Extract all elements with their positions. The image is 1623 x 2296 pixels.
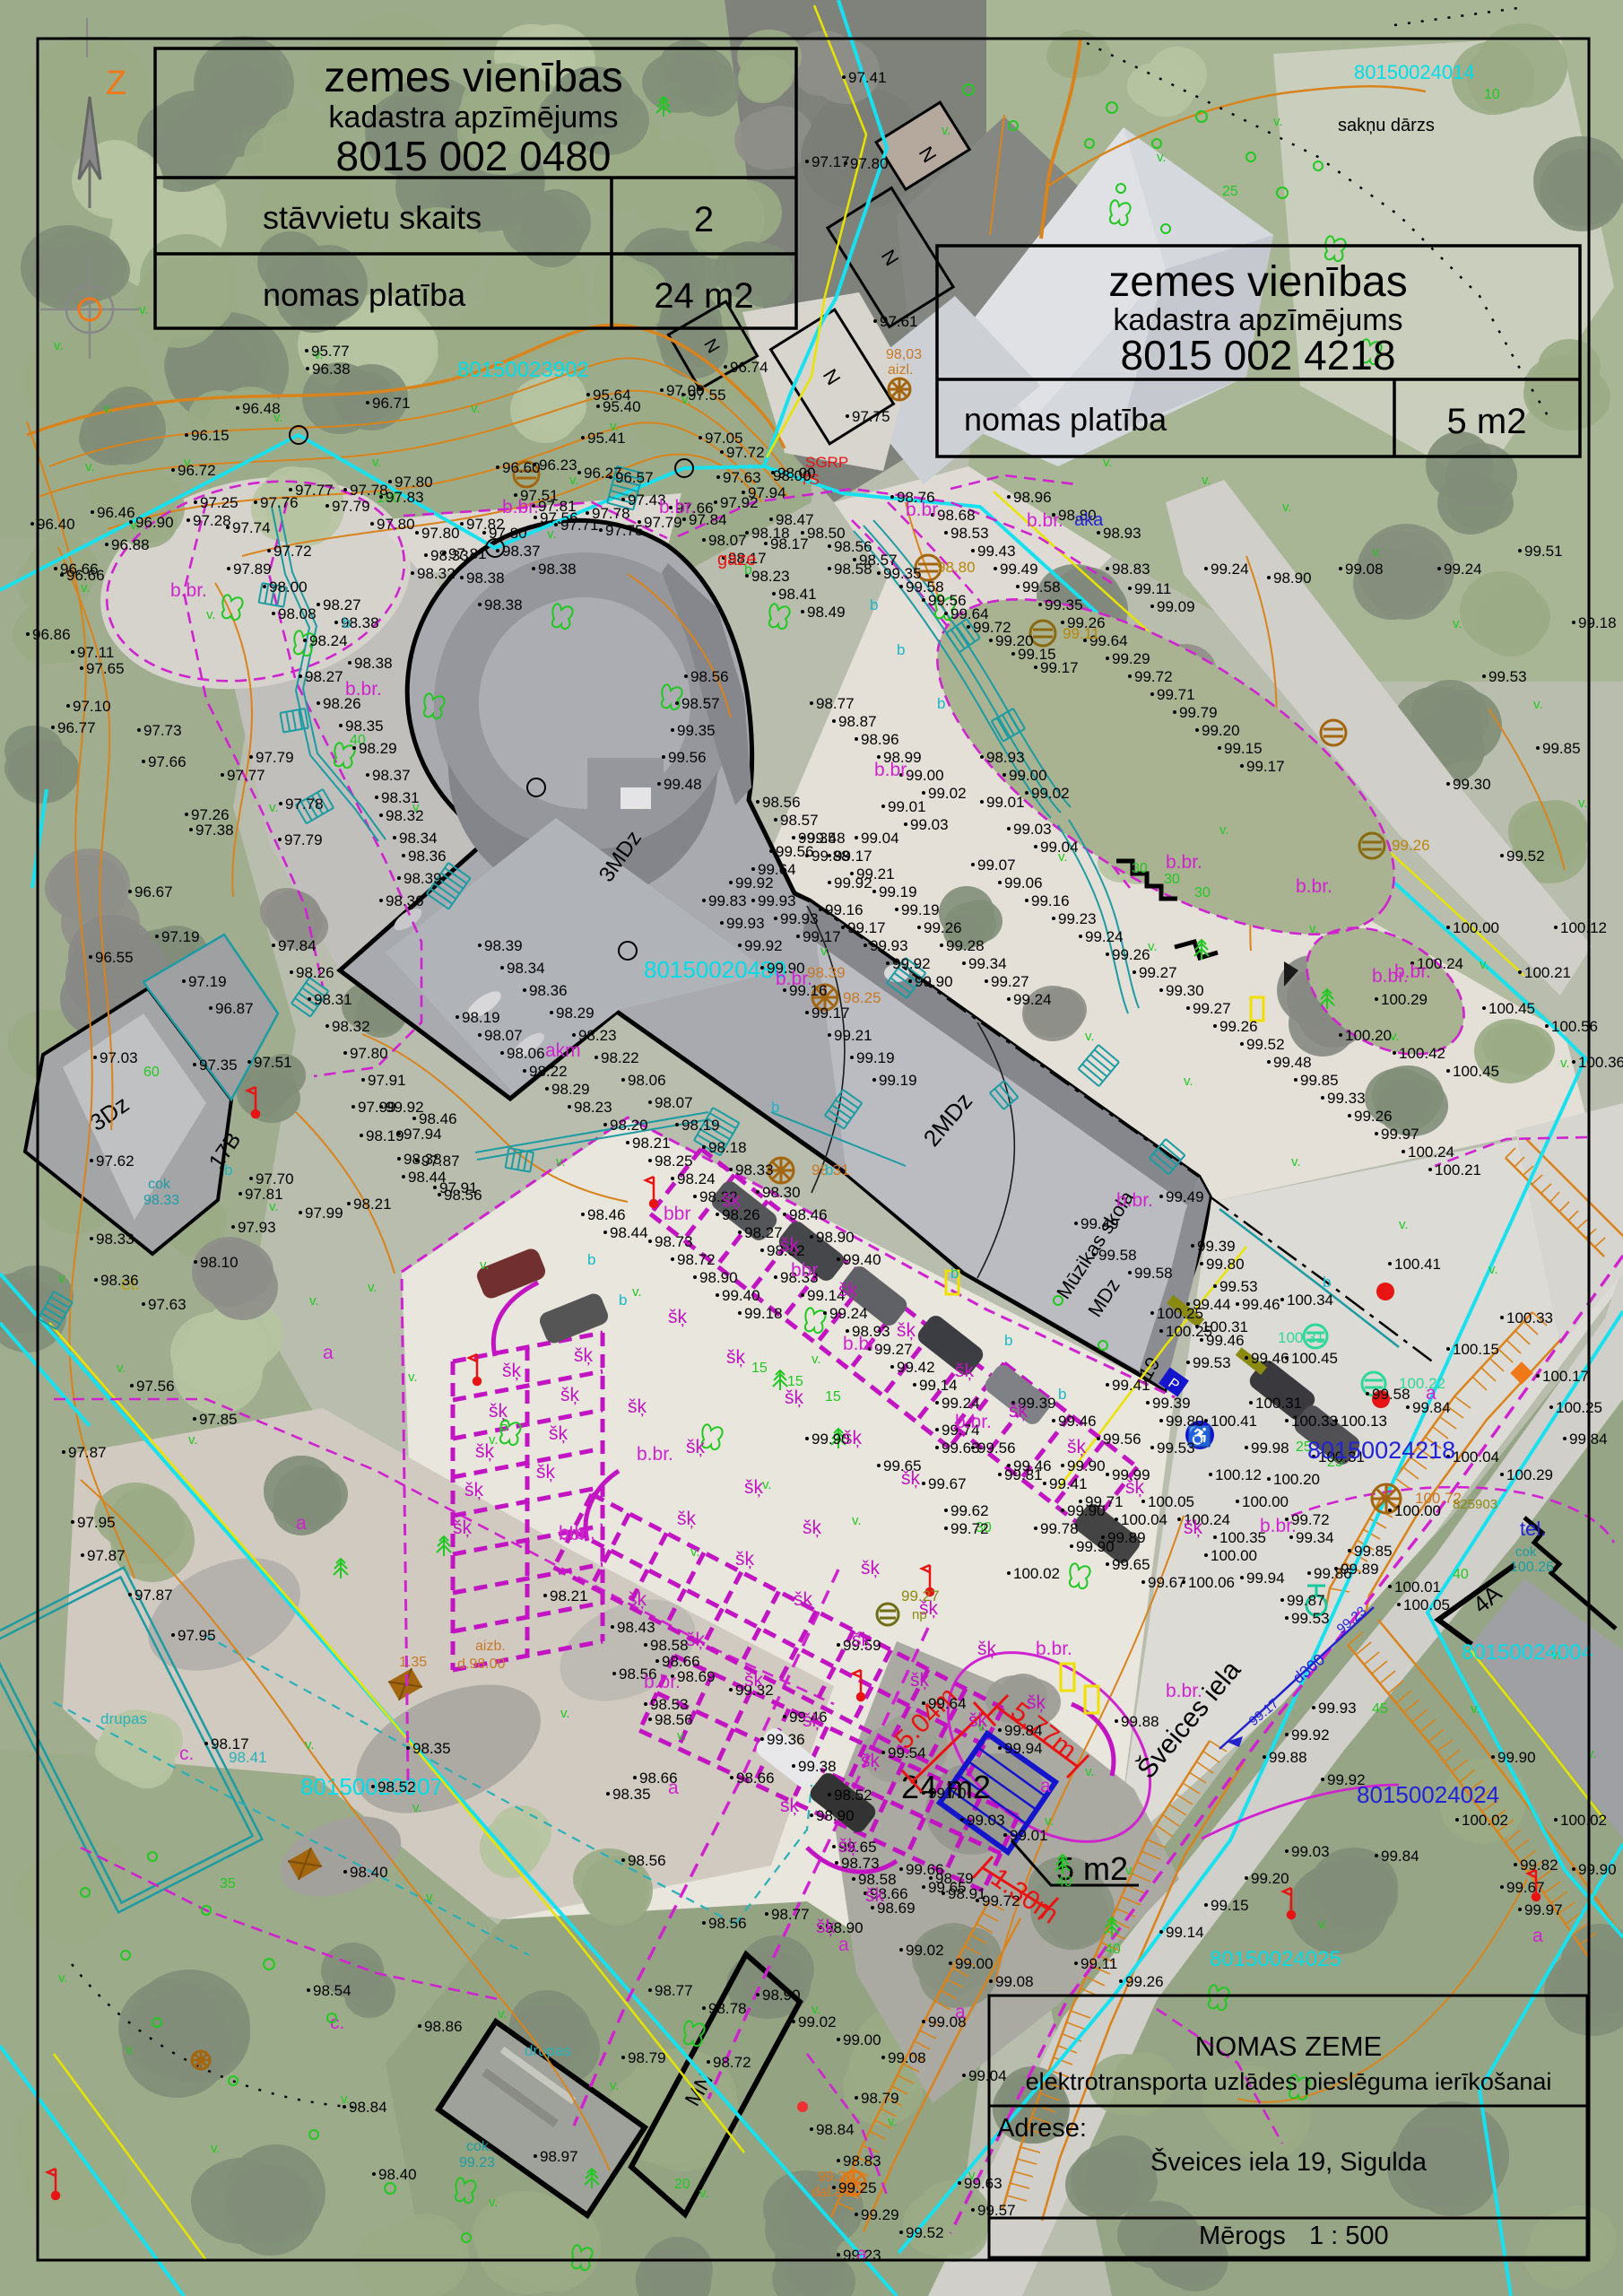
svg-text:98.90: 98.90 [816,1807,855,1824]
svg-text:100.00: 100.00 [1211,1547,1257,1564]
svg-text:98.23: 98.23 [574,1099,612,1116]
svg-text:98.90: 98.90 [1273,570,1312,587]
svg-text:v.: v. [188,1432,198,1448]
svg-text:v.: v. [58,1970,68,1986]
svg-text:98.06: 98.06 [507,1045,545,1062]
svg-text:98.90: 98.90 [762,1987,801,2004]
svg-text:98.87: 98.87 [838,713,877,730]
svg-text:40: 40 [1453,1567,1469,1582]
svg-text:99.65: 99.65 [1112,1556,1150,1573]
svg-text:98.24: 98.24 [677,1170,716,1187]
svg-text:97.87: 97.87 [68,1444,107,1461]
svg-text:cok: cok [1515,1544,1537,1560]
svg-text:v.: v. [206,607,216,622]
svg-text:97.76: 97.76 [260,494,299,511]
svg-text:98.93: 98.93 [1103,525,1141,542]
svg-text:v.: v. [471,401,481,416]
svg-text:98.23: 98.23 [751,568,790,585]
svg-text:97.80: 97.80 [421,525,460,542]
svg-text:98.38: 98.38 [484,596,523,613]
svg-text:99.38: 99.38 [798,1758,837,1775]
svg-text:v.: v. [305,1737,315,1752]
svg-text:99.49: 99.49 [1000,561,1038,578]
svg-text:100.41: 100.41 [1211,1413,1257,1430]
svg-text:98.00: 98.00 [269,578,308,596]
svg-text:97.78: 97.78 [592,505,630,522]
svg-text:99.48: 99.48 [664,776,702,793]
svg-text:97.80: 97.80 [377,516,415,533]
svg-text:100.21: 100.21 [1435,1161,1481,1178]
svg-text:a: a [668,1778,679,1798]
svg-text:aizl.: aizl. [888,362,913,378]
svg-text:b.br.: b.br. [1394,961,1431,982]
svg-text:v.: v. [1202,473,1211,488]
svg-text:100.33: 100.33 [1506,1309,1553,1326]
svg-text:šķ: šķ [502,1361,522,1381]
svg-text:99.93: 99.93 [870,937,908,954]
svg-text:99.80: 99.80 [1206,1256,1245,1273]
svg-text:99.27: 99.27 [1139,964,1177,981]
svg-text:15: 15 [751,1361,768,1376]
svg-text:97.38: 97.38 [195,822,234,839]
svg-text:98.84: 98.84 [349,2099,387,2116]
svg-text:97.83: 97.83 [386,489,424,506]
svg-text:98.19: 98.19 [681,1117,720,1134]
svg-text:v.: v. [368,1280,378,1295]
svg-text:97.65: 97.65 [86,660,125,677]
svg-text:97.95: 97.95 [77,1514,116,1531]
svg-text:b: b [619,1291,627,1309]
svg-text:98.36: 98.36 [529,982,568,999]
svg-text:100.29: 100.29 [1506,1466,1553,1483]
svg-text:SGRP: SGRP [805,454,848,471]
svg-text:99.53: 99.53 [1488,668,1527,685]
svg-text:8015 002 4218: 8015 002 4218 [1121,332,1396,378]
svg-text:v.: v. [85,459,95,474]
svg-text:100.02: 100.02 [1462,1812,1508,1829]
svg-text:1.35: 1.35 [399,1655,427,1670]
svg-text:45: 45 [1372,1701,1388,1717]
svg-text:98.17: 98.17 [211,1735,249,1752]
svg-text:šķ: šķ [794,1589,813,1610]
svg-text:98.18: 98.18 [708,1139,747,1156]
svg-text:b.br.: b.br. [1036,1639,1072,1659]
svg-text:99.94: 99.94 [1004,1740,1043,1757]
svg-text:99.70: 99.70 [928,1785,967,1802]
svg-text:100.26: 100.26 [1510,1560,1554,1575]
svg-text:98.90: 98.90 [699,1269,738,1286]
svg-text:šķ: šķ [910,1670,930,1691]
svg-text:98.38: 98.38 [466,570,505,587]
svg-text:98.19: 98.19 [366,1127,404,1144]
svg-text:99.84: 99.84 [1381,1848,1419,1865]
svg-text:99.02: 99.02 [1031,785,1070,802]
svg-text:100.06: 100.06 [1188,1574,1235,1591]
svg-text:98.35: 98.35 [612,1786,651,1803]
svg-text:5 m2: 5 m2 [1447,402,1527,441]
svg-text:šķ: šķ [861,1558,881,1578]
svg-text:2: 2 [694,200,714,239]
svg-text:99.58: 99.58 [1022,578,1061,596]
svg-text:99.39: 99.39 [1152,1395,1191,1412]
svg-text:98.10: 98.10 [200,1254,239,1271]
svg-text:nomas platība: nomas platība [964,401,1167,438]
svg-text:v.: v. [58,1271,68,1286]
svg-text:99.83: 99.83 [708,892,747,909]
svg-text:97.87: 97.87 [421,1152,460,1170]
svg-text:99.98: 99.98 [1251,1439,1289,1457]
svg-text:99.15: 99.15 [1224,740,1263,757]
svg-text:v.: v. [1157,150,1167,165]
svg-text:100.02: 100.02 [1560,1812,1607,1829]
svg-text:akm: akm [545,1040,581,1061]
svg-text:98.34: 98.34 [399,830,438,847]
svg-text:Z: Z [106,65,126,102]
svg-text:100.36: 100.36 [1578,1054,1623,1071]
svg-text:šķ: šķ [722,1190,742,1211]
svg-text:100.24: 100.24 [1408,1144,1454,1161]
svg-text:99.66: 99.66 [906,1861,944,1878]
svg-text:b.br.: b.br. [906,500,942,520]
svg-text:100.20: 100.20 [1273,1471,1320,1488]
svg-text:b: b [343,614,351,631]
svg-text:98.68: 98.68 [937,507,976,524]
svg-text:24 m2: 24 m2 [654,276,753,316]
svg-text:šķ: šķ [744,1670,764,1691]
svg-text:99.25: 99.25 [838,2179,877,2196]
svg-text:99.88: 99.88 [1269,1749,1307,1766]
svg-text:100.02: 100.02 [1013,1565,1060,1582]
svg-text:99.93: 99.93 [1318,1700,1357,1717]
svg-text:98.36: 98.36 [100,1272,139,1289]
svg-text:97.94: 97.94 [748,484,786,501]
svg-text:šķ: šķ [1027,1692,1046,1713]
svg-text:96.40: 96.40 [37,516,75,533]
svg-text:99.01: 99.01 [986,794,1025,811]
svg-text:a: a [838,1935,849,1955]
svg-text:98.31: 98.31 [314,991,352,1008]
svg-text:zemes vienības: zemes vienības [1108,258,1408,306]
svg-text:97.55: 97.55 [688,387,726,404]
svg-text:99.08: 99.08 [1345,561,1384,578]
svg-text:95.41: 95.41 [587,430,626,447]
svg-text:30: 30 [1164,872,1180,887]
svg-text:99.35: 99.35 [677,722,716,739]
svg-text:98.07: 98.07 [484,1027,523,1044]
svg-text:98.83: 98.83 [1112,561,1150,578]
svg-text:99.19: 99.19 [901,901,940,918]
svg-text:100.29: 100.29 [1381,991,1428,1008]
svg-text:99.53: 99.53 [1219,1278,1258,1295]
svg-text:99.46: 99.46 [1242,1296,1280,1313]
svg-text:99.17: 99.17 [811,1004,850,1022]
svg-text:98.66: 98.66 [736,1770,775,1787]
svg-text:30: 30 [1132,861,1148,876]
svg-text:šķ: šķ [726,1347,746,1368]
svg-text:NOMAS ZEME: NOMAS ZEME [1195,2031,1382,2062]
svg-text:98.33: 98.33 [430,547,469,564]
svg-text:98.38: 98.38 [354,655,393,672]
svg-text:v.: v. [1453,616,1462,631]
svg-text:stāvvietu skaits: stāvvietu skaits [263,199,482,236]
svg-text:99.46: 99.46 [1013,1457,1052,1474]
svg-text:99.17: 99.17 [803,928,841,945]
svg-text:v.: v. [1399,1217,1409,1232]
svg-text:96.74: 96.74 [730,359,768,376]
svg-text:99.53: 99.53 [1157,1439,1195,1457]
svg-text:97.77: 97.77 [227,767,265,784]
svg-text:35: 35 [220,1876,236,1892]
svg-text:šķ: šķ [955,1361,975,1381]
svg-text:99.42: 99.42 [897,1359,935,1376]
svg-text:98.93: 98.93 [986,749,1025,766]
svg-text:97.84: 97.84 [278,937,317,954]
svg-text:99.89: 99.89 [1341,1561,1379,1578]
svg-text:zemes vienības: zemes vienības [324,54,623,101]
svg-text:98.57: 98.57 [681,695,720,712]
svg-text:98.37: 98.37 [372,767,411,784]
svg-text:v.: v. [498,2006,508,2022]
svg-text:99.02: 99.02 [928,785,967,802]
svg-text:v.: v. [942,123,951,138]
svg-text:98.27: 98.27 [305,668,343,685]
svg-text:98.32: 98.32 [417,565,456,582]
svg-text:97.87: 97.87 [87,1547,126,1564]
svg-text:97.87: 97.87 [135,1587,173,1604]
svg-text:97.75: 97.75 [605,522,644,539]
svg-text:99.41: 99.41 [1112,1377,1150,1394]
svg-text:98.33: 98.33 [96,1231,135,1248]
svg-text:98.44: 98.44 [610,1224,648,1241]
svg-text:99.90: 99.90 [1497,1749,1536,1766]
svg-text:99.41: 99.41 [1049,1475,1088,1492]
svg-text:šķ: šķ [744,1477,764,1498]
svg-text:99.34: 99.34 [968,955,1007,972]
svg-text:99.14: 99.14 [1166,1924,1204,1941]
svg-text:100.04: 100.04 [1453,1448,1499,1465]
svg-text:95.40: 95.40 [603,398,641,415]
svg-text:a: a [1532,1926,1543,1946]
svg-text:99.02: 99.02 [798,2013,837,2031]
svg-text:98.56: 98.56 [762,794,801,811]
svg-text:99.40: 99.40 [722,1287,760,1304]
svg-text:v.: v. [426,1890,436,1905]
svg-text:97.10: 97.10 [73,698,111,715]
svg-text:30: 30 [1194,885,1211,900]
svg-text:99.71: 99.71 [1085,1493,1124,1510]
svg-text:100.05: 100.05 [1403,1596,1450,1613]
svg-text:98.73: 98.73 [841,1855,880,1872]
svg-text:99.92: 99.92 [744,937,783,954]
svg-text:99.65: 99.65 [928,1879,967,1896]
svg-text:v.: v. [852,1513,862,1528]
svg-text:80150024024: 80150024024 [1357,1781,1499,1808]
svg-text:98.49: 98.49 [807,604,846,621]
svg-text:97.25: 97.25 [200,494,239,511]
svg-text:100.04: 100.04 [1121,1511,1167,1528]
svg-text:97.99: 97.99 [305,1205,343,1222]
svg-text:98.30: 98.30 [762,1184,801,1201]
svg-text:60: 60 [143,1065,160,1080]
svg-text:v.: v. [54,338,64,353]
svg-text:b: b [870,596,878,613]
svg-text:99.21: 99.21 [834,1027,872,1044]
svg-text:99.27: 99.27 [991,973,1029,990]
svg-text:šķ: šķ [489,1401,508,1422]
svg-text:98.29: 98.29 [359,740,397,757]
svg-text:99.27: 99.27 [1193,1000,1231,1017]
svg-text:98.07: 98.07 [708,532,747,549]
svg-text:99.29: 99.29 [861,2206,899,2223]
svg-text:99.14: 99.14 [919,1377,958,1394]
svg-text:99.93: 99.93 [758,892,796,909]
svg-text:98.08: 98.08 [278,605,317,622]
svg-text:15: 15 [825,1389,841,1405]
svg-text:99.01: 99.01 [1010,1827,1048,1844]
svg-text:99.24: 99.24 [829,1305,868,1322]
svg-text:šķ: šķ [968,1710,988,1731]
svg-text:97.19: 97.19 [188,973,227,990]
svg-text:šķ: šķ [628,1396,647,1417]
svg-text:b: b [771,1099,779,1116]
svg-text:99.94: 99.94 [1246,1570,1285,1587]
svg-text:98.79: 98.79 [628,2049,666,2066]
svg-text:v.: v. [560,1706,570,1721]
svg-text:99.24: 99.24 [1013,991,1052,1008]
svg-text:98.77: 98.77 [655,1982,693,1999]
svg-text:98.72: 98.72 [677,1251,716,1268]
svg-text:šķ: šķ [735,1549,755,1570]
svg-text:97.81: 97.81 [538,498,577,515]
svg-text:šķ: šķ [897,1320,916,1341]
svg-text:97.93: 97.93 [238,1219,276,1236]
svg-text:98.39: 98.39 [404,870,442,887]
svg-text:99.11: 99.11 [1134,580,1171,597]
svg-text:b.br.: b.br. [874,760,911,780]
svg-text:99.48: 99.48 [1273,1054,1312,1071]
svg-text:b: b [897,641,905,658]
svg-text:98.27: 98.27 [744,1224,783,1241]
svg-text:99.46: 99.46 [1058,1413,1097,1430]
svg-text:97.81: 97.81 [245,1186,283,1203]
svg-text:100.31: 100.31 [1278,1329,1324,1346]
svg-text:99.19: 99.19 [879,1072,917,1089]
svg-text:šķ: šķ [668,1307,688,1327]
svg-text:99.52: 99.52 [1506,848,1545,865]
svg-text:98.27: 98.27 [323,596,361,613]
svg-text:96.66: 96.66 [60,561,99,578]
svg-text:99.03: 99.03 [1291,1843,1330,1860]
svg-text:99.03: 99.03 [910,816,949,833]
svg-text:v.: v. [1273,114,1283,129]
svg-text:šķ: šķ [475,1441,495,1462]
svg-text:99.62: 99.62 [950,1502,989,1519]
svg-text:98.72: 98.72 [713,2054,751,2071]
svg-text:b.br.: b.br. [1296,876,1332,897]
svg-text:99.90: 99.90 [1076,1538,1115,1555]
svg-text:80150024004: 80150024004 [1462,1640,1593,1665]
svg-text:a: a [856,2244,867,2265]
svg-text:sakņu dārzs: sakņu dārzs [1338,116,1435,135]
svg-text:99.20: 99.20 [1202,722,1240,739]
svg-text:99.92: 99.92 [735,874,774,891]
svg-text:97.72: 97.72 [273,543,312,560]
svg-text:šķ: šķ [865,1885,885,1906]
svg-text:99.06: 99.06 [1004,874,1043,891]
svg-text:gāze: gāze [717,550,756,570]
svg-text:98.86: 98.86 [424,2018,463,2035]
svg-text:99.00: 99.00 [843,2031,881,2048]
svg-text:v.: v. [547,526,557,542]
svg-text:98.53: 98.53 [950,525,989,542]
svg-text:97.63: 97.63 [148,1296,187,1313]
svg-text:97.79: 97.79 [256,749,294,766]
svg-text:aizb.: aizb. [475,1639,506,1654]
svg-text:v.: v. [269,800,279,815]
svg-text:v.: v. [569,473,579,488]
svg-text:99.29: 99.29 [1112,650,1150,667]
svg-text:b: b [937,695,945,712]
svg-text:99.90: 99.90 [1067,1457,1106,1474]
svg-text:nomas platība: nomas platība [263,276,466,313]
svg-text:97.73: 97.73 [143,722,182,739]
svg-text:šķ: šķ [780,1235,800,1256]
svg-text:96.55: 96.55 [95,949,134,966]
svg-text:99.02: 99.02 [906,1942,944,1959]
svg-text:99.46: 99.46 [1251,1350,1289,1367]
svg-text:97.75: 97.75 [852,408,890,425]
svg-text:825903: 825903 [1453,1497,1497,1512]
svg-text:a: a [955,2002,966,2022]
svg-text:97.89: 97.89 [233,561,272,578]
svg-text:98.83: 98.83 [843,2152,881,2170]
svg-text:b.br.: b.br. [659,497,696,517]
svg-text:96.15: 96.15 [191,427,230,444]
svg-text:99.56: 99.56 [668,749,707,766]
svg-text:98.00: 98.00 [773,467,811,484]
svg-text:98.21: 98.21 [550,1587,588,1605]
svg-text:98.80: 98.80 [937,559,976,576]
svg-text:99.24: 99.24 [1211,561,1249,578]
svg-text:šķ: šķ [901,1468,921,1489]
svg-text:b: b [1058,1386,1066,1403]
svg-text:80150023902: 80150023902 [457,358,589,382]
svg-text:97.82: 97.82 [466,516,505,533]
svg-text:98.25: 98.25 [655,1152,693,1170]
svg-text:98.52: 98.52 [378,1779,416,1796]
svg-text:97.03: 97.03 [100,1049,138,1066]
svg-text:v.: v. [1372,544,1382,560]
svg-text:b: b [587,1251,595,1268]
svg-text:20: 20 [674,2177,690,2192]
svg-text:šķ: šķ [838,1280,858,1300]
svg-text:96.87: 96.87 [215,1000,254,1017]
svg-text:a: a [323,1343,334,1363]
svg-text:v.: v. [677,1728,687,1744]
svg-text:98.69: 98.69 [677,1668,716,1685]
svg-text:97.85: 97.85 [199,1411,238,1428]
svg-text:v.: v. [1291,1154,1301,1170]
svg-text:98.35: 98.35 [412,1740,451,1757]
svg-text:99.26: 99.26 [924,919,962,936]
svg-text:99.04: 99.04 [968,2067,1007,2084]
svg-text:99.24: 99.24 [1085,928,1124,945]
svg-text:šķ: šķ [453,1518,473,1538]
svg-text:a: a [1040,1776,1051,1796]
svg-text:99.30: 99.30 [1453,776,1491,793]
svg-text:80150024218: 80150024218 [1307,1437,1455,1464]
svg-text:99.09: 99.09 [1157,598,1195,615]
